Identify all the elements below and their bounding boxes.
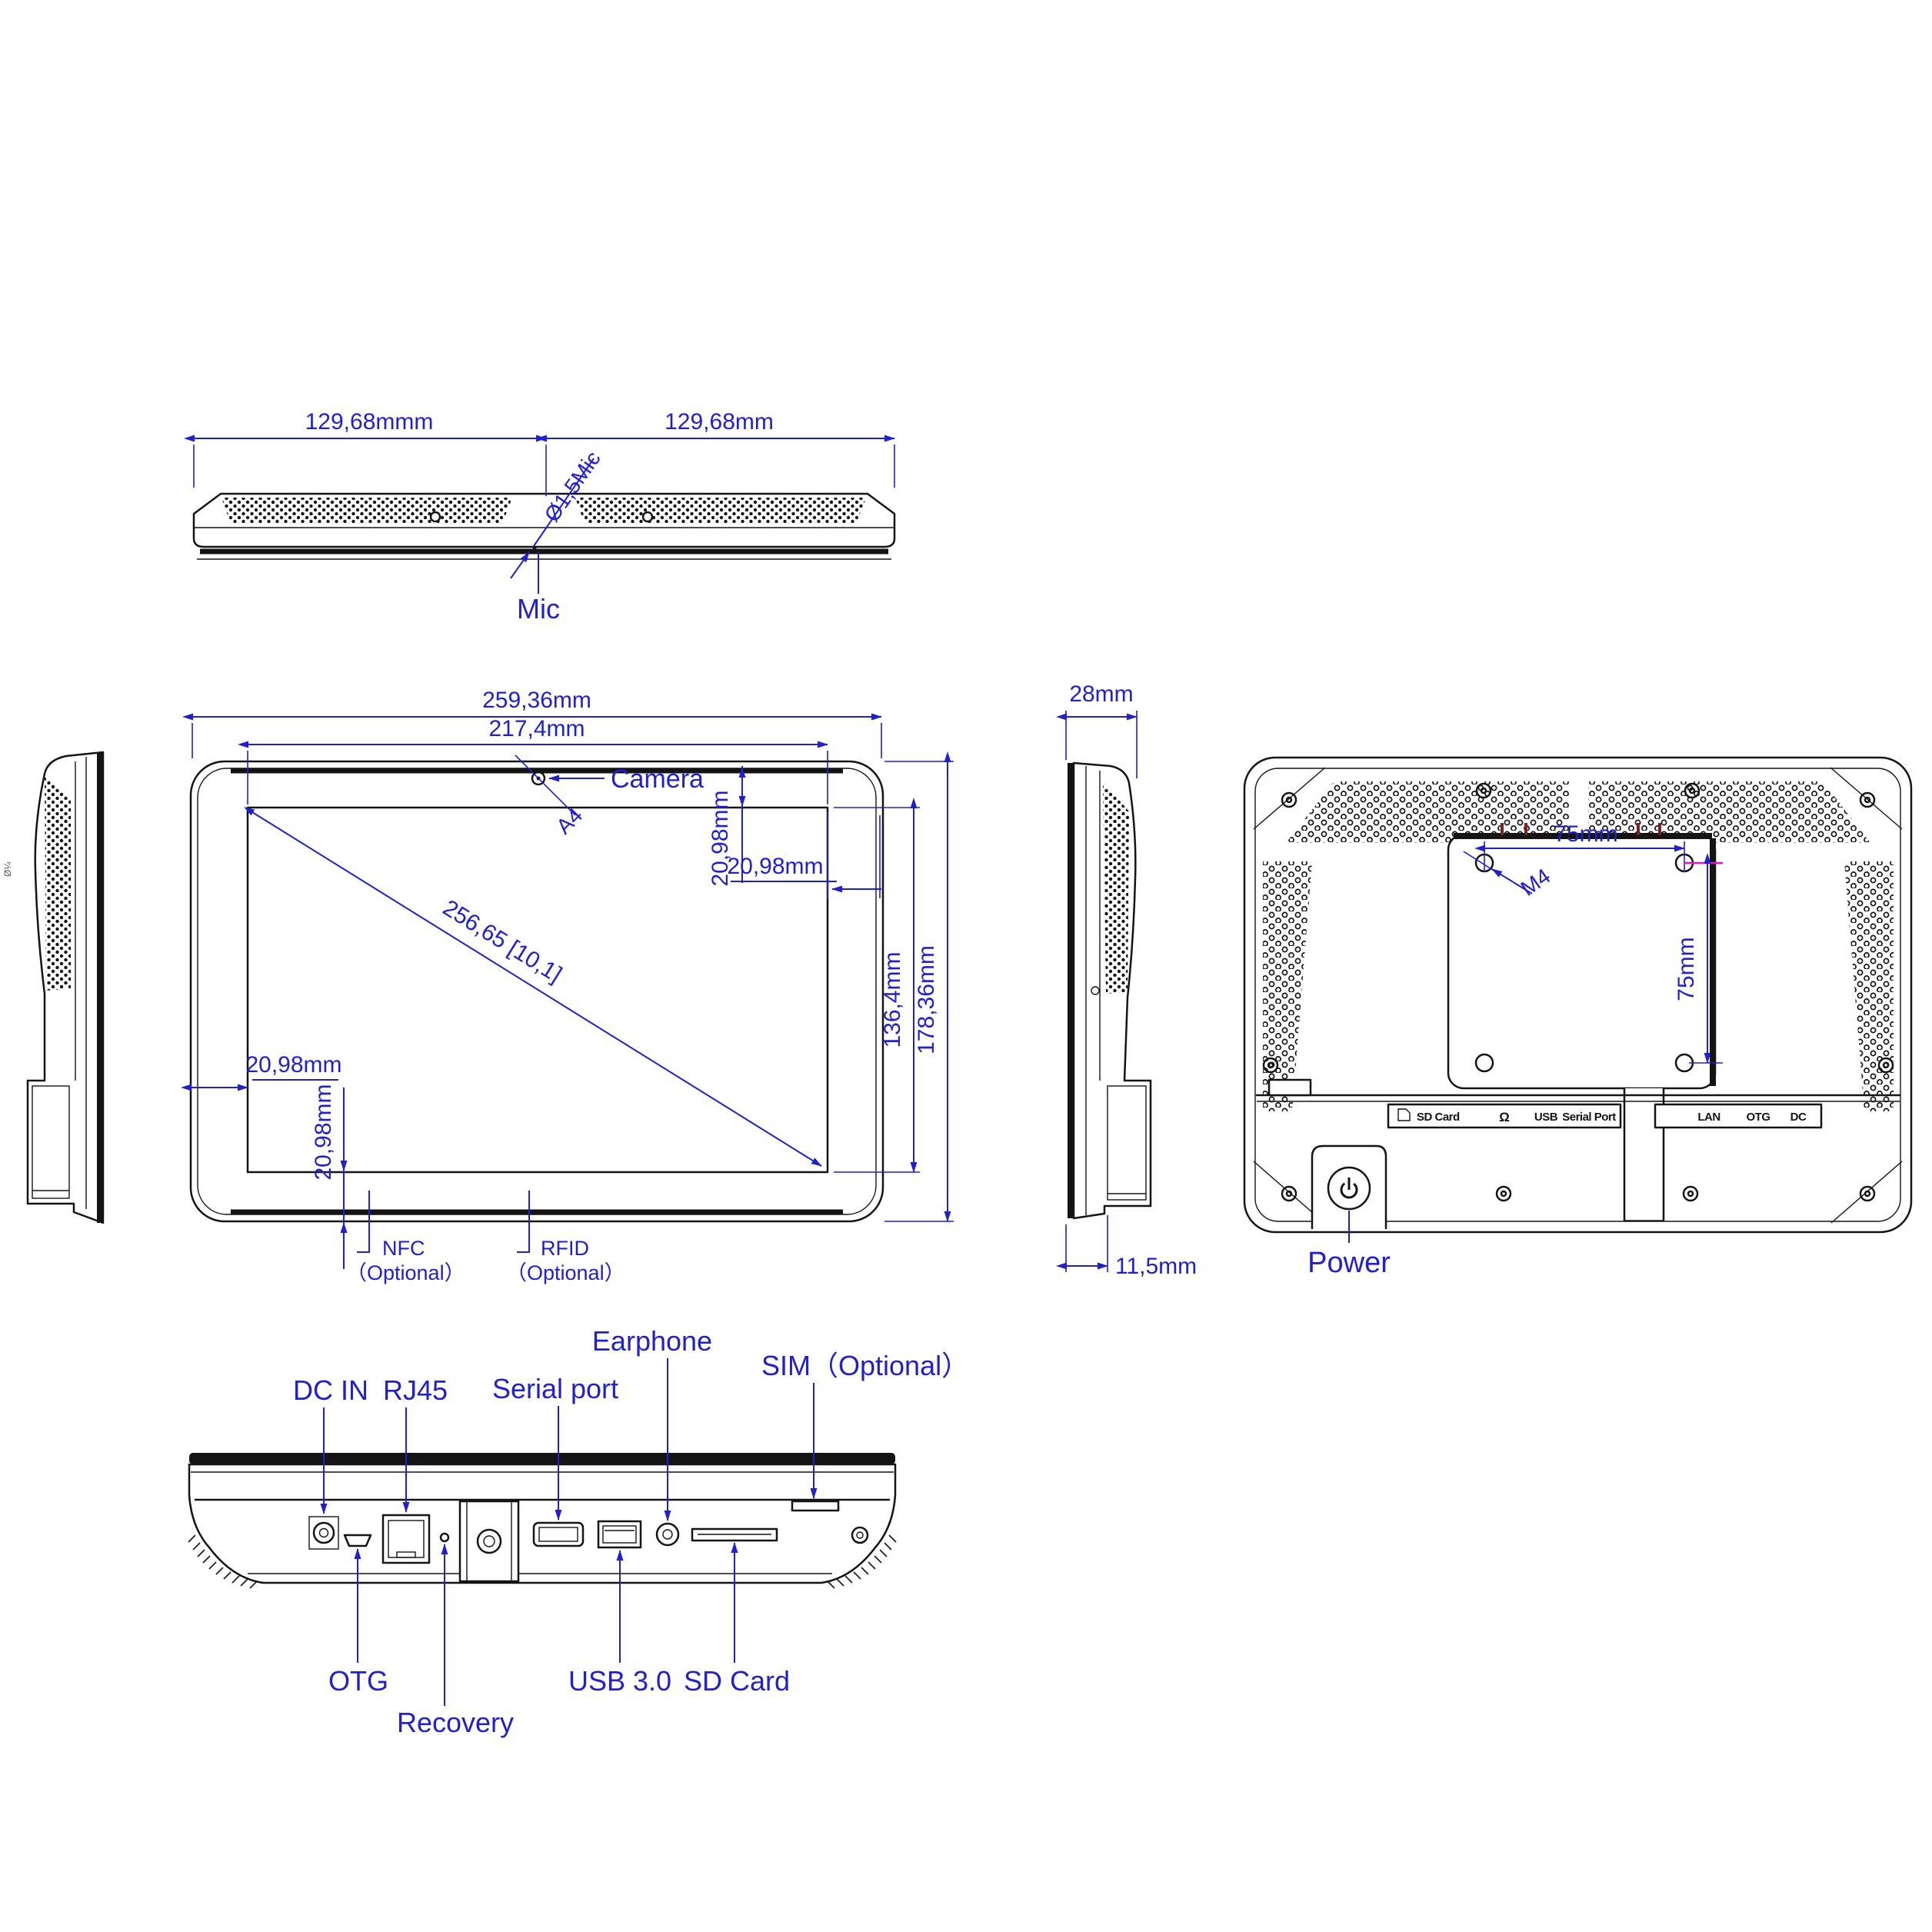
serial-port bbox=[534, 1523, 583, 1546]
power-label: Power bbox=[1307, 1247, 1391, 1279]
center-bracket bbox=[460, 1501, 518, 1581]
back-label-serial: Serial Port bbox=[1562, 1111, 1616, 1124]
side-mid-glass-edge bbox=[1068, 763, 1074, 1218]
margin-mark: Ø¼ bbox=[2, 861, 13, 877]
sd-slot bbox=[692, 1529, 777, 1541]
front-left-bezel-label: 20,98mm bbox=[245, 1052, 341, 1078]
otg-label: OTG bbox=[328, 1665, 388, 1697]
headphone-icon: Ω bbox=[1499, 1110, 1510, 1124]
recovery-label: Recovery bbox=[397, 1707, 514, 1738]
nfc-note: （Optional） bbox=[346, 1261, 465, 1284]
tablet-dimension-drawing: 129,68mmm 129,68mm Ø1,5Mic Mic A4 Camera bbox=[0, 0, 1932, 1932]
front-bottom-bezel-label: 20,98mm bbox=[311, 1084, 336, 1180]
rfid-label: RFID bbox=[541, 1237, 589, 1260]
view-side-left: Ø¼ bbox=[2, 752, 104, 1223]
back-label-otg: OTG bbox=[1747, 1111, 1770, 1124]
back-port-strip-left: SD Card Ω USB Serial Port bbox=[1388, 1104, 1621, 1128]
back-label-lan: LAN bbox=[1697, 1111, 1720, 1124]
rj45-label: RJ45 bbox=[383, 1374, 448, 1406]
front-screen-height-label: 136,4mm bbox=[880, 951, 905, 1048]
view-top: 129,68mmm 129,68mm Ø1,5Mic Mic bbox=[194, 409, 894, 625]
camera-label: Camera bbox=[611, 764, 704, 794]
power-button-callout: Power bbox=[1307, 1146, 1391, 1279]
back-label-sd: SD Card bbox=[1417, 1111, 1460, 1124]
top-screw-right bbox=[643, 512, 652, 521]
vesa-width-label: 75mm bbox=[1554, 821, 1617, 847]
side-left-vent bbox=[45, 774, 71, 991]
view-back: 75mm M4 75mm SD Card Ω USB Serial Port bbox=[1244, 758, 1911, 1279]
technical-drawing-page: 129,68mmm 129,68mm Ø1,5Mic Mic A4 Camera bbox=[0, 0, 1932, 1932]
side-mid-vent bbox=[1103, 781, 1129, 994]
mic-label: Mic bbox=[517, 593, 560, 625]
back-label-dc: DC bbox=[1790, 1111, 1807, 1124]
sim-slot bbox=[792, 1501, 838, 1511]
side-bracket-label: 11,5mm bbox=[1115, 1254, 1197, 1279]
top-speaker-grille-left bbox=[222, 498, 512, 524]
dc-in-label: DC IN bbox=[293, 1374, 368, 1406]
view-front: A4 Camera 259,36mm 217,4mm 256,65 [10,1] bbox=[191, 688, 954, 1284]
front-overall-height-label: 178,36mm bbox=[914, 945, 939, 1054]
usb3-port bbox=[598, 1521, 641, 1547]
vesa-height-label: 75mm bbox=[1674, 937, 1699, 1001]
nfc-label: NFC bbox=[382, 1237, 425, 1260]
side-mid-hole bbox=[1091, 987, 1099, 994]
sd-card-label: SD Card bbox=[684, 1665, 790, 1697]
rfid-note: （Optional） bbox=[506, 1261, 625, 1284]
dim-label-top-right: 129,68mm bbox=[665, 409, 774, 435]
dim-label-top-left: 129,68mmm bbox=[305, 409, 434, 435]
otg-port bbox=[345, 1535, 371, 1546]
top-speaker-grille-right bbox=[575, 498, 866, 524]
view-side-mid: 28mm 11,5mm bbox=[1066, 681, 1197, 1279]
earphone-label: Earphone bbox=[592, 1325, 712, 1357]
sim-label: SIM（Optional） bbox=[761, 1350, 969, 1381]
serial-port-label: Serial port bbox=[492, 1373, 618, 1404]
side-depth-label: 28mm bbox=[1069, 681, 1133, 707]
top-screw-left bbox=[431, 512, 440, 521]
front-screen-width-label: 217,4mm bbox=[488, 716, 585, 741]
dim-top-width-left: 129,68mmm 129,68mm bbox=[194, 409, 894, 496]
back-label-usb: USB bbox=[1534, 1111, 1558, 1124]
usb3-label: USB 3.0 bbox=[568, 1665, 671, 1697]
bottom-glass-edge bbox=[189, 1453, 895, 1464]
view-bottom: DC IN RJ45 Serial port Earphone SIM（Opti… bbox=[188, 1325, 969, 1738]
side-left-glass-edge bbox=[97, 752, 104, 1223]
dc-jack bbox=[309, 1517, 338, 1549]
front-body-outline bbox=[191, 761, 883, 1221]
front-overall-width-label: 259,36mm bbox=[482, 688, 591, 713]
front-right-bezel-label: 20,98mm bbox=[727, 854, 823, 879]
back-port-strip-right: LAN OTG DC bbox=[1655, 1104, 1821, 1128]
back-left-tab bbox=[1269, 1080, 1311, 1095]
rj45-port bbox=[383, 1515, 429, 1563]
dim-side-bracket: 11,5mm bbox=[1066, 1215, 1197, 1279]
